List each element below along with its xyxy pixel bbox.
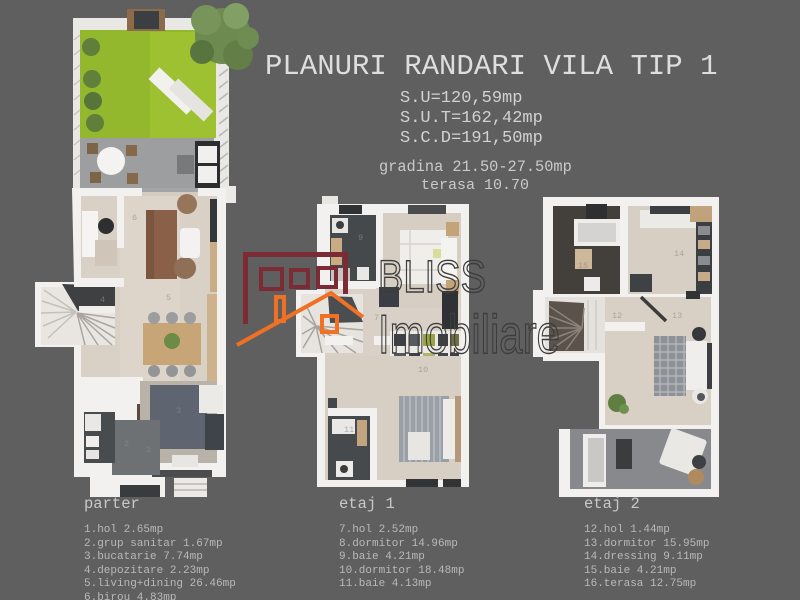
svg-text:BLISS: BLISS — [378, 251, 486, 302]
svg-text:Imobiliare: Imobiliare — [378, 303, 560, 365]
